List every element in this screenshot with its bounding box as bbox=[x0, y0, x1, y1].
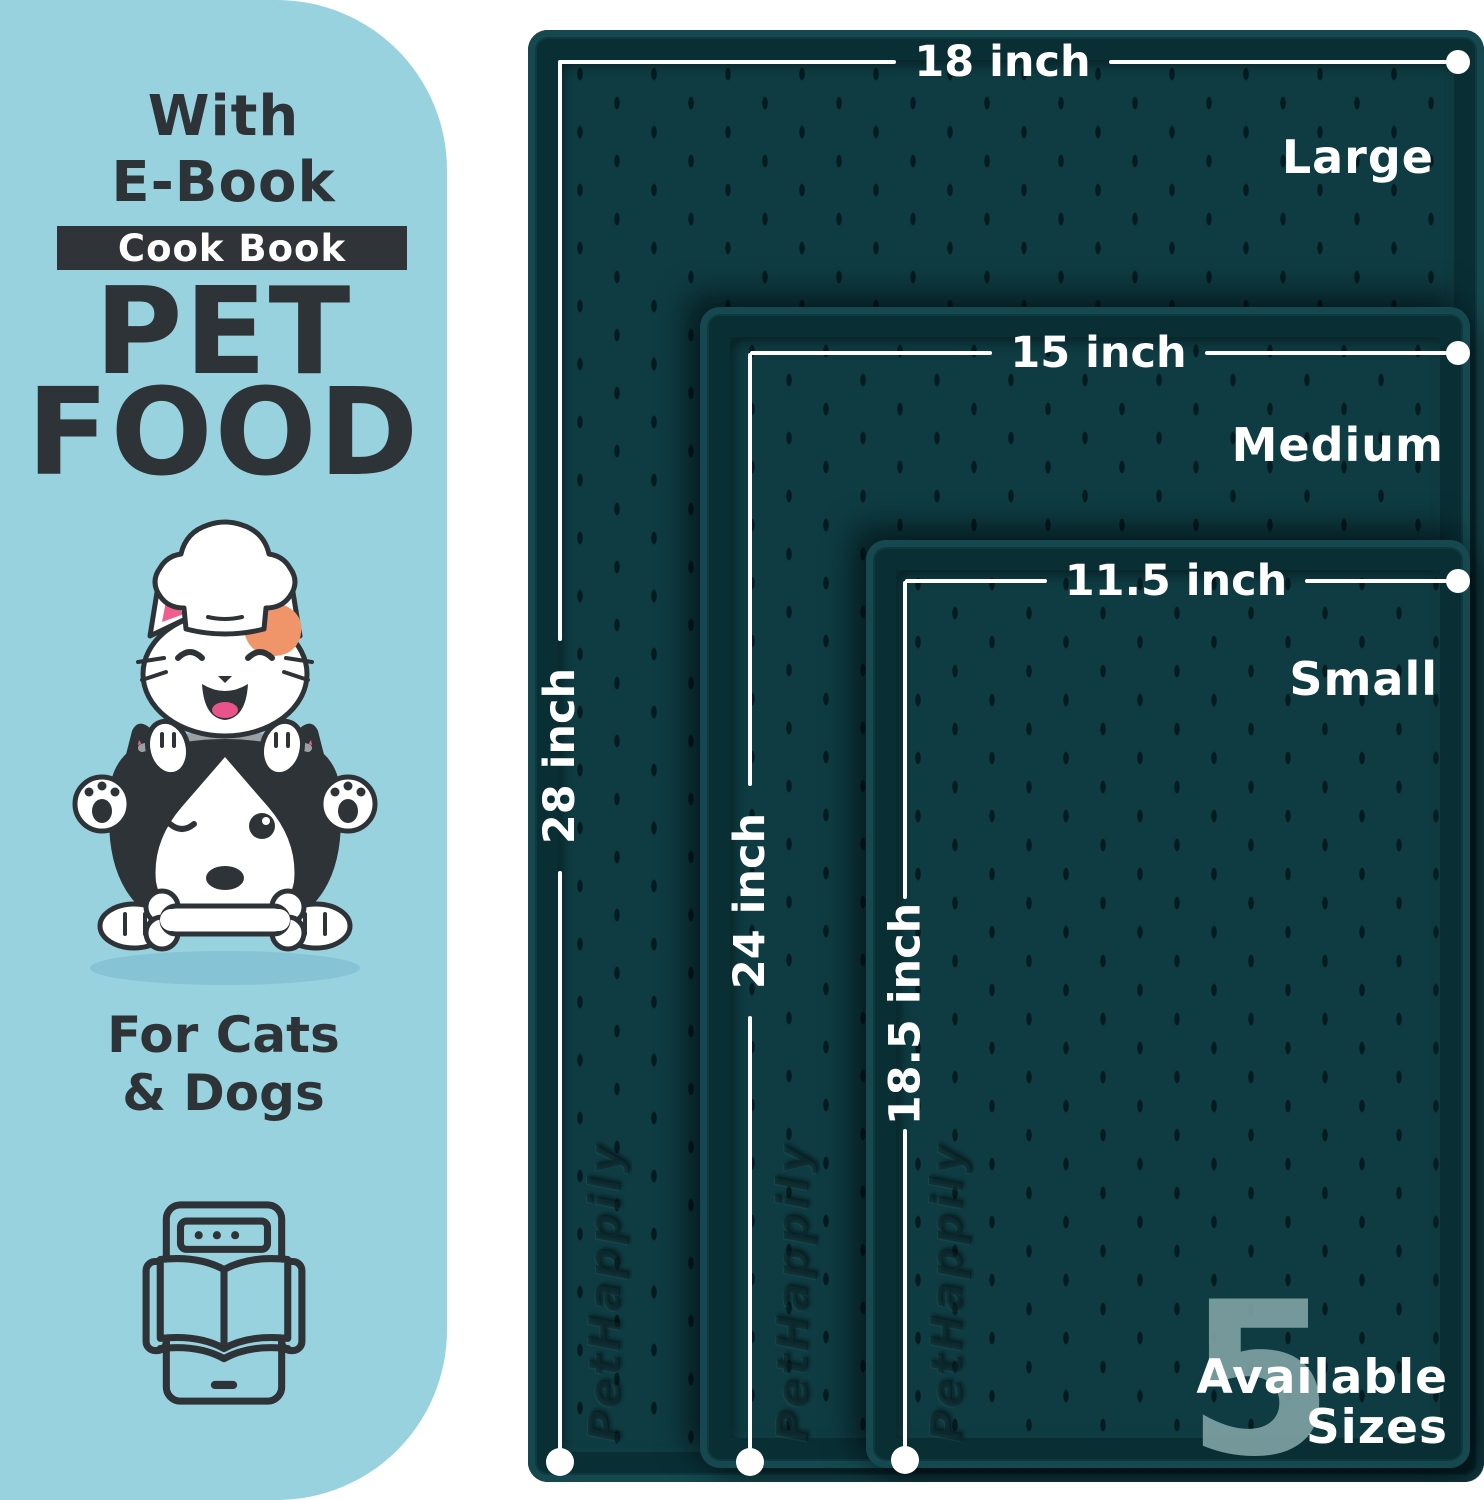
length-label-medium: 24 inch bbox=[725, 813, 775, 989]
dimension-line bbox=[1305, 579, 1447, 583]
badge-line-1: Available bbox=[1196, 1353, 1448, 1404]
length-dimension-small: 18.5 inch bbox=[882, 581, 928, 1474]
with-ebook-heading: With E-Book bbox=[0, 84, 447, 216]
cat-dog-chef-illustration bbox=[48, 486, 402, 991]
size-chart: PetHappily PetHappily PetHappily 18 inch… bbox=[528, 30, 1484, 1482]
dog-paw-left bbox=[75, 777, 129, 831]
info-panel: With E-Book Cook Book PET FOOD bbox=[0, 0, 447, 1500]
dimension-endpoint-dot bbox=[891, 1446, 919, 1474]
embossed-logo: PetHappily bbox=[580, 1142, 631, 1442]
mat-name-small: Small bbox=[1289, 652, 1438, 706]
length-label-wrap: 28 inch bbox=[528, 641, 648, 871]
width-label-large: 18 inch bbox=[896, 37, 1108, 87]
embossed-logo: PetHappily bbox=[922, 1142, 973, 1442]
dimension-line bbox=[558, 871, 562, 1450]
embossed-logo: PetHappily bbox=[768, 1142, 819, 1442]
width-dimension-medium: 15 inch bbox=[750, 330, 1470, 376]
dimension-line bbox=[1205, 351, 1447, 355]
ground-shadow bbox=[90, 951, 360, 985]
length-label-wrap: 18.5 inch bbox=[794, 899, 1017, 1129]
for-cats-dogs-text: For Cats & Dogs bbox=[0, 1006, 447, 1122]
ebook-icon bbox=[138, 1196, 310, 1410]
dimension-endpoint-dot bbox=[1446, 569, 1470, 593]
dimension-line bbox=[903, 1129, 907, 1447]
dimension-endpoint-dot bbox=[736, 1448, 764, 1476]
dimension-endpoint-dot bbox=[1446, 50, 1470, 74]
dimension-endpoint-dot bbox=[546, 1448, 574, 1476]
mat-name-medium: Medium bbox=[1232, 418, 1444, 472]
dimension-line bbox=[558, 62, 562, 641]
available-sizes-label: Available Sizes bbox=[1196, 1353, 1448, 1455]
dimension-line bbox=[1109, 60, 1447, 64]
dimension-line bbox=[748, 353, 752, 786]
mat-name-large: Large bbox=[1282, 130, 1434, 184]
dimension-line bbox=[750, 351, 992, 355]
length-label-small: 18.5 inch bbox=[880, 903, 930, 1126]
width-label-small: 11.5 inch bbox=[1047, 556, 1306, 606]
subtitle-line-2: & Dogs bbox=[0, 1064, 447, 1122]
cat-chef-head bbox=[138, 522, 312, 736]
length-label-large: 28 inch bbox=[535, 667, 585, 843]
dimension-line bbox=[558, 60, 896, 64]
product-infographic: With E-Book Cook Book PET FOOD bbox=[0, 0, 1484, 1500]
dimension-line bbox=[903, 581, 907, 899]
husky-dog-head bbox=[75, 735, 375, 949]
title-line-2: FOOD bbox=[0, 383, 447, 484]
dog-paw-right bbox=[321, 777, 375, 831]
badge-line-2: Sizes bbox=[1196, 1403, 1448, 1454]
width-dimension-small: 11.5 inch bbox=[905, 558, 1470, 604]
width-dimension-large: 18 inch bbox=[558, 39, 1470, 85]
dimension-line bbox=[748, 1016, 752, 1449]
pet-food-title: PET FOOD bbox=[0, 282, 447, 484]
length-dimension-medium: 24 inch bbox=[727, 353, 773, 1476]
width-label-medium: 15 inch bbox=[992, 328, 1204, 378]
subtitle-line-1: For Cats bbox=[0, 1006, 447, 1064]
heading-line-2: E-Book bbox=[0, 150, 447, 216]
length-dimension-large: 28 inch bbox=[537, 62, 583, 1476]
dimension-endpoint-dot bbox=[1446, 341, 1470, 365]
heading-line-1: With bbox=[0, 84, 447, 150]
